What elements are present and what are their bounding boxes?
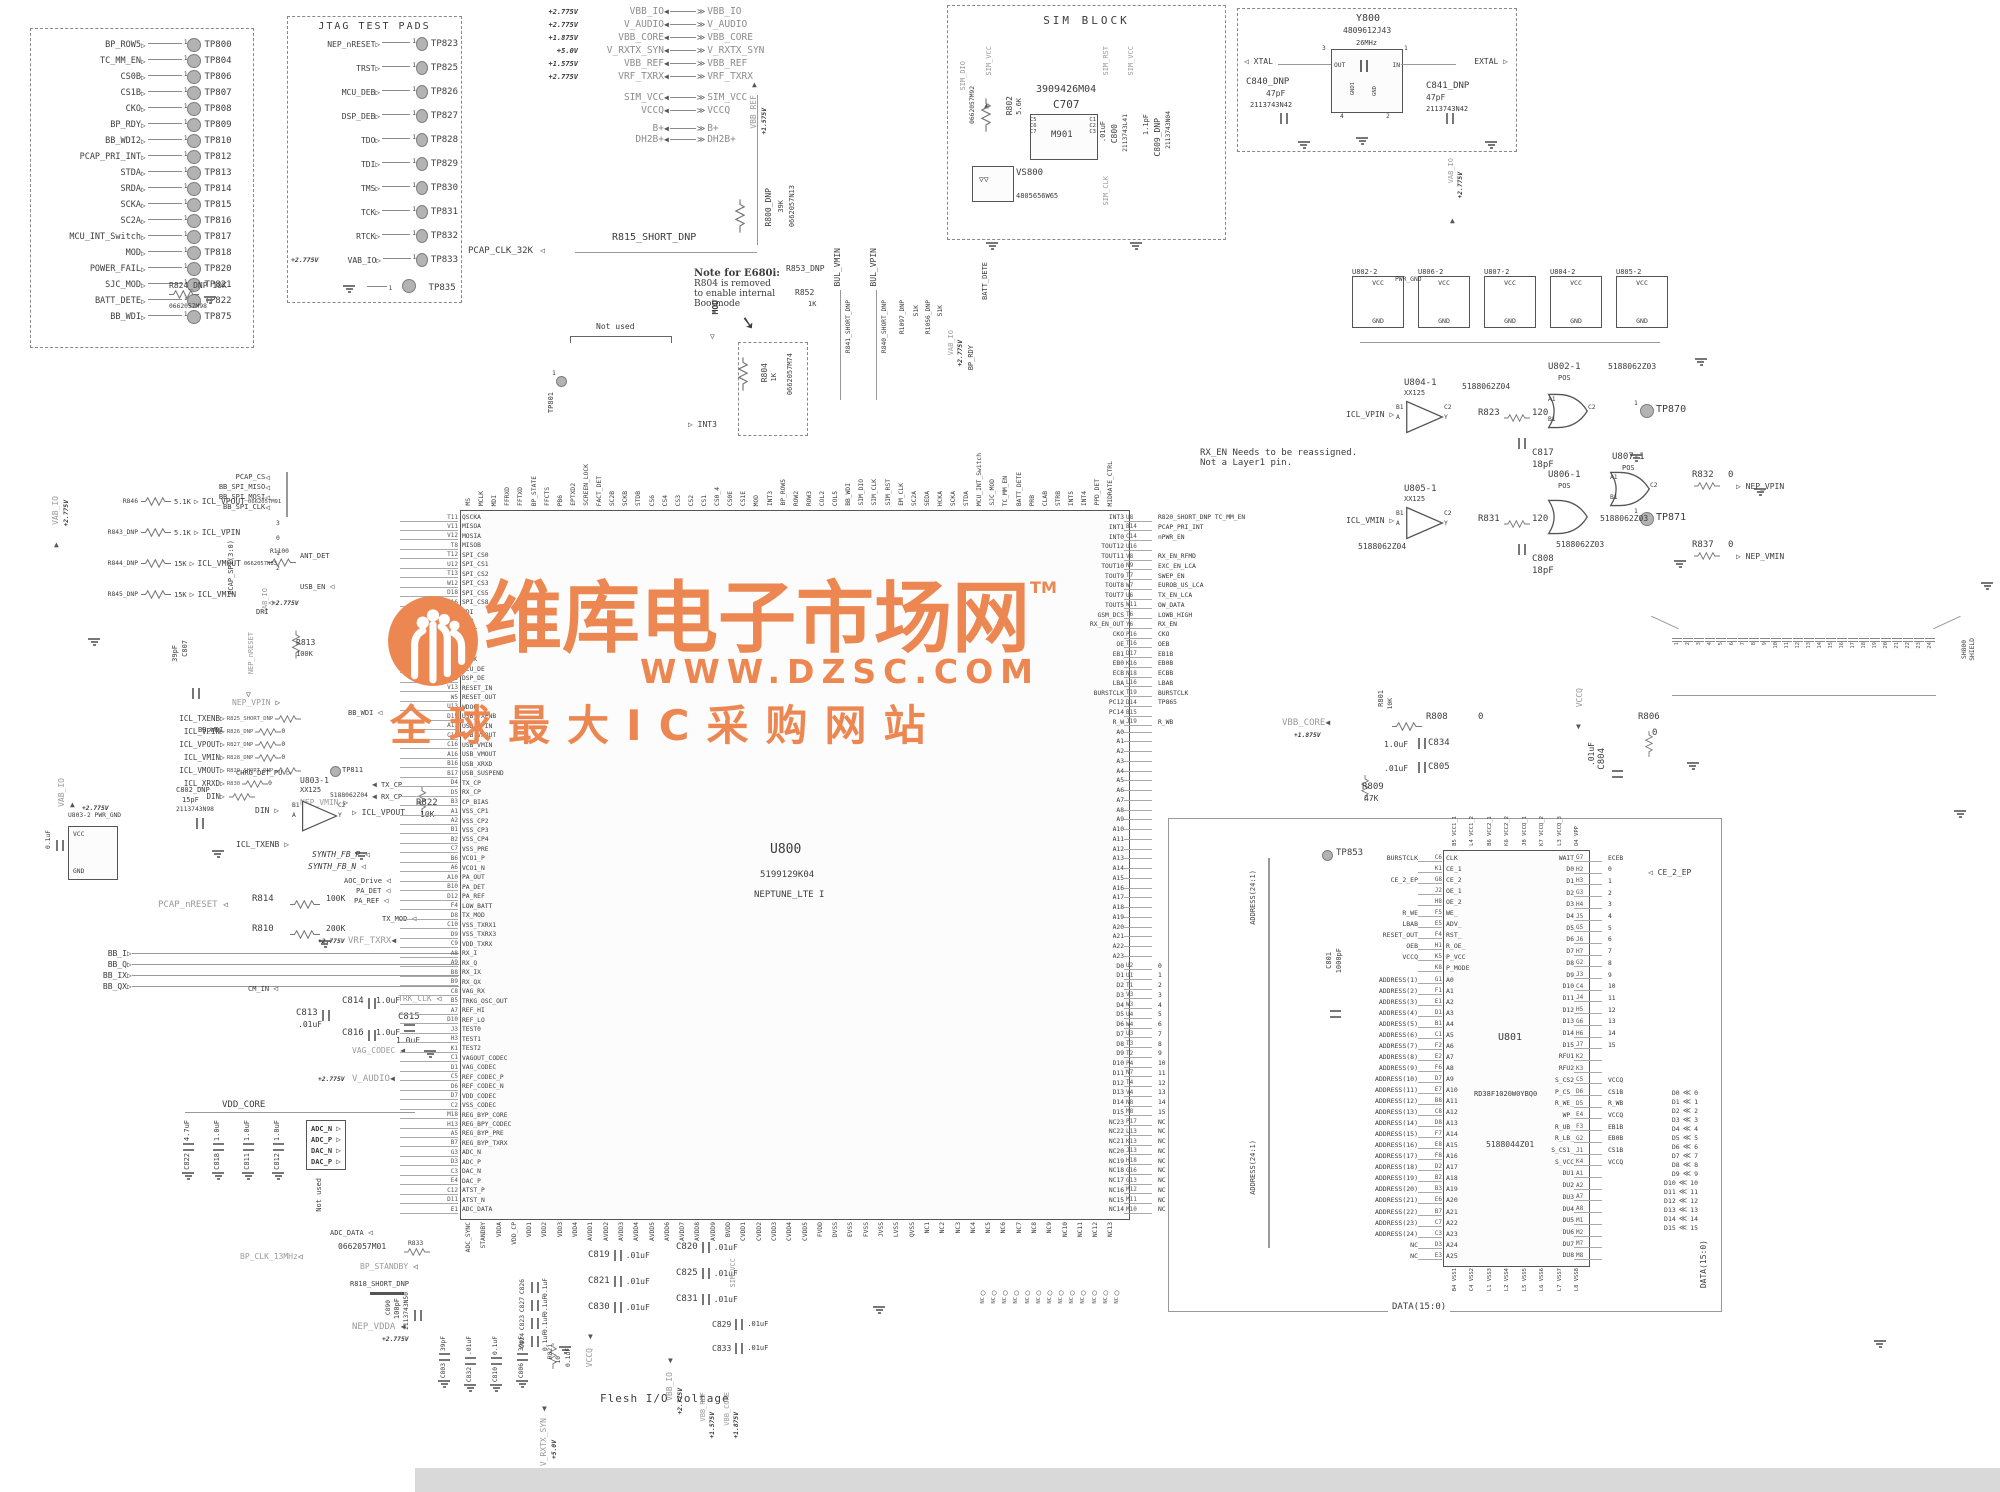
- pin-name: TEST0: [458, 1026, 481, 1033]
- gnd-icon: [343, 285, 355, 287]
- r802-val: 5.6K: [1016, 98, 1024, 115]
- pin-code: M18: [400, 1111, 458, 1119]
- top-signal: CS2: [689, 495, 696, 506]
- sim-title: SIM BLOCK: [948, 14, 1225, 27]
- pin-name: RX_I: [458, 950, 477, 957]
- top-pin: K7 VCCQ_2: [1539, 816, 1545, 846]
- signal-label: BP_ROW5: [35, 40, 141, 50]
- pin-code: T1: [1124, 982, 1152, 990]
- testpoint-row: PCAP_PRI_INT ▷ 1 TP812: [35, 149, 249, 165]
- pin-code: W3: [1124, 1001, 1152, 1009]
- port-arrow-icon: ▷: [141, 233, 146, 242]
- pin-row: NC20 J13 NC: [1044, 1148, 1344, 1155]
- data-line: D6 ≪ 6: [1628, 1142, 1698, 1151]
- rail-row: B+ ◀≫ B+: [528, 123, 764, 134]
- pin-row: TOUT9 T7 SWEP_EN: [1044, 573, 1344, 580]
- pin-code: C12: [400, 1187, 458, 1195]
- data-name: D6: [1672, 1143, 1680, 1151]
- pin-code: E6: [1418, 1196, 1442, 1204]
- arrow-icon: ≫: [697, 20, 705, 29]
- pin-name: WAIT: [1512, 855, 1574, 862]
- pin-code: E8: [1418, 1141, 1442, 1149]
- testpoint-label: TP815: [201, 200, 231, 210]
- testpad-icon: [187, 38, 201, 52]
- resistor-ref: R844_DNP: [76, 560, 138, 567]
- pin-code: [1124, 790, 1152, 791]
- external-signal: NC: [1152, 1197, 1166, 1204]
- bus-number: 13: [1690, 1206, 1698, 1214]
- external-signal: ADDRESS(5): [1322, 1020, 1418, 1028]
- nc-pin: ○NC: [1036, 1288, 1042, 1304]
- pin-name: A8: [1442, 1064, 1454, 1072]
- pin-name: A23: [1044, 953, 1124, 960]
- external-signal: 3: [1602, 901, 1612, 908]
- wire: [382, 42, 410, 43]
- pin-row: A13: [1044, 855, 1344, 862]
- pin-name: WE_: [1442, 909, 1458, 917]
- pin-row: F4 LOW_BATT: [400, 903, 580, 910]
- pin-row: C1 VAGOUT_CODEC: [400, 1055, 580, 1062]
- pin-name: VAG_RX: [458, 988, 485, 995]
- pin-code: [1124, 810, 1152, 811]
- pin-name: A25: [1442, 1252, 1458, 1260]
- bottom-pin: CVDD1: [741, 1222, 748, 1241]
- bottom-pin: QVSS: [910, 1222, 917, 1237]
- pin-name: A19: [1442, 1185, 1458, 1193]
- pin-row: PC14 B15: [1044, 709, 1344, 716]
- gnd-icon: [873, 1306, 885, 1308]
- gnd-icon: [1954, 810, 1966, 812]
- testpad-icon: [416, 85, 428, 99]
- pin-name: VAGOUT_CODEC: [458, 1055, 508, 1062]
- pin-row: TOUT7 U6 TX_EN_LCA: [1044, 592, 1344, 599]
- top-pin: B6 VCC2_1: [1487, 816, 1493, 846]
- testpoint-row: TC_MM_EN ▷ 1 TP804: [35, 53, 249, 69]
- pin-code: J7: [1574, 1041, 1602, 1049]
- bus-number: 14: [1690, 1215, 1698, 1223]
- arrow-icon: ◀: [664, 72, 669, 81]
- pin-row: A15: [1044, 875, 1344, 882]
- simvcc-caps: C829 .01uF C833 .01uF: [712, 1312, 768, 1360]
- pin-code: A9: [400, 959, 458, 967]
- nep-row: ICL_VPIN ▷ R826_DNP 0: [150, 725, 301, 738]
- pin-name: VDD_TXRX: [458, 941, 492, 948]
- bus-number: 9: [1694, 1170, 1698, 1178]
- pin-row: D1 H3 1: [1512, 877, 1692, 885]
- pin-code: [1124, 907, 1152, 908]
- pin-code: T6: [1124, 611, 1152, 619]
- pin-name: D10: [1044, 1060, 1124, 1067]
- pin-name: WP_: [1512, 1112, 1574, 1119]
- pin-code: J3: [1574, 971, 1602, 979]
- top-signal: INT4: [1082, 491, 1089, 506]
- pin-code: J4: [1574, 994, 1602, 1002]
- pin-name: VSS_CP1: [458, 808, 489, 815]
- power-rails: +2.775V VBB_IO ◀≫ VBB_IO +2.775V V_AUDIO…: [528, 5, 764, 145]
- pin-row: D0 U2 0: [1044, 963, 1344, 970]
- signal-label: SJC_MOD: [35, 280, 141, 290]
- pin-code: T19: [1124, 689, 1152, 697]
- bus-number: 0: [1694, 1089, 1698, 1097]
- pin-name: MOSIA: [458, 533, 481, 540]
- pin-code: D2: [1418, 1163, 1442, 1171]
- pin-name: PC12: [1044, 699, 1124, 706]
- pin-code: C1: [1418, 1031, 1442, 1039]
- pin-code: K13: [1124, 1138, 1152, 1146]
- pin-name: A19: [1044, 914, 1124, 921]
- external-signal: EB1B: [1602, 1124, 1623, 1131]
- pin-code: U1: [1124, 972, 1152, 980]
- pin-name: A4: [1442, 1020, 1454, 1028]
- pin-name: ATST_N: [458, 1197, 485, 1204]
- wire: [148, 43, 182, 44]
- shield-pin: 17: [1848, 638, 1858, 649]
- pin-code: K8: [1418, 964, 1442, 972]
- external-signal: 1: [1152, 972, 1162, 979]
- pin-name: MISOB: [458, 542, 481, 549]
- signal-label: ICL_TXENB: [150, 714, 220, 723]
- pin-row: V12 MOSIA: [400, 533, 580, 540]
- shield-name: SHIELD: [1970, 638, 1977, 661]
- top-signal: SEDA: [925, 491, 932, 506]
- pin-code: P4: [1124, 1060, 1152, 1068]
- testpoint-label: TP827: [428, 111, 458, 121]
- port-arrow-icon: ▷: [141, 185, 146, 194]
- external-signal: PCAP_PRI_INT: [1152, 524, 1204, 531]
- wire: [382, 138, 410, 139]
- bul-vpin: BUL_VPIN: [870, 248, 879, 287]
- external-signal: NC: [1152, 1187, 1166, 1194]
- top-signal: MDI: [492, 495, 499, 506]
- cap-ref: C812: [274, 1153, 282, 1170]
- pin-name: D2: [1044, 982, 1124, 989]
- c809-part: 2113743N04: [1166, 111, 1173, 149]
- cap-ref: C832: [467, 1367, 474, 1382]
- cap-item: C824 0.1uF: [520, 1332, 550, 1350]
- pin-name: D6: [1512, 936, 1574, 943]
- top-signal: SIM_DIO: [859, 479, 866, 506]
- pin-name: CE_1: [1442, 865, 1462, 873]
- testpoint-row: BP_RDY ▷ 1 TP809: [35, 117, 249, 133]
- pin-code: A7: [1574, 1193, 1602, 1201]
- pin-name: D10: [1512, 983, 1574, 990]
- pin-code: A5: [400, 1130, 458, 1138]
- pin-code: [1124, 946, 1152, 947]
- data-name: D15: [1664, 1224, 1676, 1232]
- external-signal: VCCQ: [1602, 1077, 1623, 1084]
- pin-code: N8: [1124, 1099, 1152, 1107]
- testpad-icon: [416, 37, 428, 51]
- pin-code: U3: [1124, 1030, 1152, 1038]
- pin-name: NC21: [1044, 1138, 1124, 1145]
- top-signal: PB6: [558, 495, 565, 506]
- external-signal: VCCQ: [1602, 1112, 1623, 1119]
- pin-name: PA_DET: [458, 884, 485, 891]
- pin-name: D13: [1512, 1018, 1574, 1025]
- part-number: 0662057N83: [244, 561, 277, 567]
- pin-code: F2: [1418, 1042, 1442, 1050]
- external-signal: 2: [1602, 890, 1612, 897]
- pin-name: DU2: [1512, 1182, 1574, 1189]
- synth-fb-n: SYNTH_FB_N: [308, 862, 356, 871]
- signal-label: BB_WDI: [35, 312, 141, 322]
- external-signal: ADDRESS(14): [1322, 1119, 1418, 1127]
- pin-row: C8 VAG_RX: [400, 988, 580, 995]
- pin-code: V12: [400, 532, 458, 540]
- u806-part: 5188062Z03: [1556, 540, 1604, 549]
- note-arrow-icon: ➘: [740, 309, 756, 335]
- adc-data: ADC_DATA: [330, 1229, 364, 1237]
- pin-row: D6 W4 6: [1044, 1021, 1344, 1028]
- pin-name: A12: [1044, 846, 1124, 853]
- external-signal: ADDRESS(22): [1322, 1208, 1418, 1216]
- top-signal: SIM_RST: [886, 479, 893, 506]
- pin-name: A15: [1044, 875, 1124, 882]
- pin-row: D4 J5 4: [1512, 913, 1692, 921]
- pin-code: B7: [1418, 1208, 1442, 1216]
- arrow-icon: ≫: [697, 7, 705, 16]
- cap-ref: C806: [519, 1363, 526, 1378]
- pin-name: D9: [1512, 972, 1574, 979]
- u805-part: 5188062Z04: [1358, 542, 1406, 551]
- cap-item: .01uF C832: [464, 1336, 476, 1386]
- arrow-icon: ≫: [697, 46, 705, 55]
- pin-row: A2 VSS_CP2: [400, 818, 580, 825]
- pin-name: QSCKA: [458, 514, 481, 521]
- cap-ref: C822: [184, 1153, 192, 1170]
- r824-resistor: R824_DNP 10K 0662057M98: [169, 281, 227, 310]
- pin-code: H8: [1418, 898, 1442, 906]
- pin-name: USB_SUSPEND: [458, 770, 504, 777]
- signal-label: SCKA: [35, 200, 141, 210]
- external-signal: R_WB: [1602, 1100, 1623, 1107]
- pin-code: C8: [1418, 1108, 1442, 1116]
- rail-name: SIM_VCC: [582, 92, 664, 103]
- pin-code: U6: [1124, 592, 1152, 600]
- pin-row: B3 CP_BIAS: [400, 799, 580, 806]
- external-signal: 10: [1152, 1060, 1166, 1067]
- testpoint-label: TP806: [201, 72, 231, 82]
- top-signal: CLAB: [1043, 491, 1050, 506]
- pin-name: S_CS2: [1512, 1077, 1574, 1084]
- pin-code: H2: [1574, 866, 1602, 874]
- pin-code: U16: [1124, 543, 1152, 551]
- pin-name: VCO1_N: [458, 865, 485, 872]
- tp870-label: TP870: [1656, 404, 1686, 415]
- pin-row: H13 REG_BPY_CODEC: [400, 1121, 580, 1128]
- pin-code: W4: [1124, 1021, 1152, 1029]
- pin-name: ADC_P: [458, 1159, 481, 1166]
- pin-code: D6: [1574, 1088, 1602, 1096]
- jtag-list: NEP_nRESET ▷ 1 TP823 TRST ▷ 1 TP825 MCU_…: [288, 32, 461, 272]
- signal-label: ICL_VPIN: [150, 727, 220, 736]
- pin-row: RFU2 K3: [1512, 1065, 1692, 1073]
- testpad-icon: [187, 118, 201, 132]
- external-signal: NC: [1152, 1206, 1166, 1213]
- pin-code: G7: [1574, 854, 1602, 862]
- top-signal: STDB: [636, 491, 643, 506]
- watermark-slogan: 全球最大IC采购网站: [390, 692, 942, 753]
- pin-code: D14: [1124, 699, 1152, 707]
- resistor-ref: R830: [227, 781, 240, 787]
- pin-code: D8: [400, 912, 458, 920]
- external-signal: 5: [1152, 1011, 1162, 1018]
- external-signal: NC: [1322, 1252, 1418, 1260]
- u804-buffer-icon: [1404, 398, 1446, 436]
- port-arrow-icon: ▷: [141, 41, 146, 50]
- pcap-nreset: PCAP_nRESET: [158, 900, 218, 910]
- rail-name: SIM_VCC: [705, 92, 747, 103]
- y800-part: 4809612J43: [1343, 26, 1391, 35]
- c814: C814: [342, 996, 364, 1006]
- wire: [382, 114, 410, 115]
- cap-item: C829 .01uF: [712, 1312, 768, 1336]
- pin-name: BURSTCLK: [1044, 690, 1124, 697]
- pin-name: D1: [1044, 972, 1124, 979]
- jtag-row: DSP_DEB ▷ 1 TP827: [291, 104, 458, 128]
- pin-row: BURSTCLK T19 BURSTCLK: [1044, 690, 1344, 697]
- shield-ref: SH800: [1962, 640, 1969, 659]
- port-arrow-icon: ▷: [375, 64, 380, 73]
- pin-name: D8: [1044, 1041, 1124, 1048]
- data-name: D1: [1672, 1098, 1680, 1106]
- bottom-pin: AVDD4: [634, 1222, 641, 1241]
- gnd-icon: [1695, 358, 1707, 360]
- pin-row: C3 DAC_N: [400, 1168, 580, 1175]
- r802-ref: R802: [1006, 96, 1015, 115]
- pin-code: D5: [1574, 1100, 1602, 1108]
- c707-ref: C707: [1053, 98, 1080, 111]
- gnd-icon: [1674, 560, 1686, 562]
- pin-row: EB0 K16 EB0B: [1044, 660, 1344, 667]
- external-signal: 15: [1602, 1042, 1616, 1049]
- pin-name: S_VCC: [1512, 1159, 1574, 1166]
- synth-fb-p: SYNTH_FB_P: [312, 850, 360, 859]
- pin-code: [1124, 878, 1152, 879]
- pin-code: J13: [1124, 1147, 1152, 1155]
- bottom-pin: ADC_SYNC: [466, 1222, 473, 1252]
- bottom-pin: VDD4: [573, 1222, 580, 1237]
- pin-row: RX_EN_OUT Y6 RX_EN: [1044, 621, 1344, 628]
- r809: R809: [1362, 782, 1384, 792]
- testpoint-label: TP817: [201, 232, 231, 242]
- pin-code: C6: [1418, 854, 1442, 862]
- pin-name: DU8: [1512, 1252, 1574, 1259]
- resistor-ref: R843_DNP: [76, 529, 138, 536]
- resistor-ref: R845_DNP: [76, 591, 138, 598]
- external-signal: RX_EN: [1152, 621, 1177, 628]
- data-line: D11 ≪ 11: [1628, 1187, 1698, 1196]
- pin-row: D14 N8 14: [1044, 1099, 1344, 1106]
- pin-code: T12: [400, 551, 458, 559]
- pin-row: B2 VSS_CP4: [400, 836, 580, 843]
- wire: [148, 139, 182, 140]
- pin-name: A16: [1044, 885, 1124, 892]
- external-signal: 3: [1152, 992, 1162, 999]
- pin-row: A6 VCO1_N: [400, 865, 580, 872]
- gnd-icon: [1874, 1340, 1886, 1342]
- pin-code: B3: [400, 798, 458, 806]
- pin-row: C12 ATST_P: [400, 1187, 580, 1194]
- top-signal: SCKB: [623, 491, 630, 506]
- cap-ref: C818: [214, 1153, 222, 1170]
- r810: R810: [252, 924, 274, 934]
- top-signal: MIDRATE_CTRL: [1108, 461, 1115, 507]
- external-signal: ADDRESS(3): [1322, 998, 1418, 1006]
- pin-row: NC17 G13 NC: [1044, 1177, 1344, 1184]
- bottom-pin: JVSS: [879, 1222, 886, 1237]
- pin-name: R_UB_: [1512, 1124, 1574, 1131]
- cap-val: 0.1uF: [543, 1332, 550, 1351]
- rail-name: VCCQ: [582, 105, 664, 116]
- pin-row: C9 VDD_TXRX: [400, 941, 580, 948]
- pin-code: G2: [1574, 1135, 1602, 1143]
- u802-part: 5188062Z03: [1608, 362, 1656, 371]
- external-signal: 5: [1602, 925, 1612, 932]
- bb-wdi: BB_WDI: [348, 709, 373, 717]
- top-signal: CS1E: [741, 491, 748, 506]
- nc-circles: ○NC○NC○NC○NC○NC○NC○NC○NC○NC○NC○NC○NC○NC: [980, 1288, 1120, 1304]
- pin-code: [1124, 751, 1152, 752]
- shield-pin: 1: [1672, 638, 1682, 649]
- top-signal: ROW3: [807, 491, 814, 506]
- pin-code: M1: [1574, 1217, 1602, 1225]
- testpad-icon: [416, 205, 428, 219]
- watermark-url: WWW.DZSC.COM: [640, 652, 1040, 691]
- pin-row: D6 REF_CODEC_N: [400, 1083, 580, 1090]
- pin-code: U12: [400, 561, 458, 569]
- pin-row: S_CS2 C5 VCCQ: [1512, 1076, 1692, 1084]
- icl-signal: ICL_VMIN: [197, 590, 236, 599]
- data-line: D8 ≪ 8: [1628, 1160, 1698, 1169]
- pin-code: B9: [400, 978, 458, 986]
- pin-name: ADC_DATA: [458, 1206, 492, 1213]
- pin-code: G6: [1574, 1018, 1602, 1026]
- testpoint-label: TP835: [426, 283, 456, 293]
- external-signal: EB0B: [1152, 660, 1173, 667]
- gnd-icon: [212, 850, 224, 852]
- testpoint-label: TP831: [428, 207, 458, 217]
- bottom-pin: L7 VSS7: [1557, 1268, 1563, 1291]
- testpoint-label: TP807: [201, 88, 231, 98]
- rail-row: +2.775V VBB_IO ◀≫ VBB_IO: [528, 5, 764, 18]
- pin-name: A7: [1442, 1053, 1454, 1061]
- pin-name: D15: [1512, 1042, 1574, 1049]
- external-signal: 4: [1602, 913, 1612, 920]
- pin-row: CKO P16 CKO: [1044, 631, 1344, 638]
- nep-row: ICL_XRXD ▷ R830 0: [150, 777, 301, 790]
- shield-pin: 19: [1870, 638, 1880, 649]
- wire: [148, 91, 182, 92]
- pin-name: D8: [1512, 960, 1574, 967]
- pin-name: LBA: [1044, 680, 1124, 687]
- pin-code: T13: [400, 570, 458, 578]
- pin-name: DU3: [1512, 1194, 1574, 1201]
- pin-name: CE_2: [1442, 876, 1462, 884]
- v-rxtx-syn-rail: V_RXTX_SYN: [540, 1418, 549, 1466]
- bus-number: 6: [1694, 1143, 1698, 1151]
- pin-row: D5 U4 5: [1044, 1011, 1344, 1018]
- sim-block: SIM BLOCK SIM_DIO SIM_VCC ▲ 0662057M92 R…: [947, 5, 1226, 240]
- shield-pin: 13: [1804, 638, 1814, 649]
- testpoint-label: TP814: [201, 184, 231, 194]
- external-signal: 1: [1602, 878, 1612, 885]
- external-signal: ADDRESS(24): [1322, 1230, 1418, 1238]
- nc-pin: ○NC: [1080, 1288, 1086, 1304]
- resistor-val: 0: [281, 754, 285, 761]
- r813: R813: [296, 638, 315, 647]
- external-signal: RX_EN_RFMD: [1152, 553, 1196, 560]
